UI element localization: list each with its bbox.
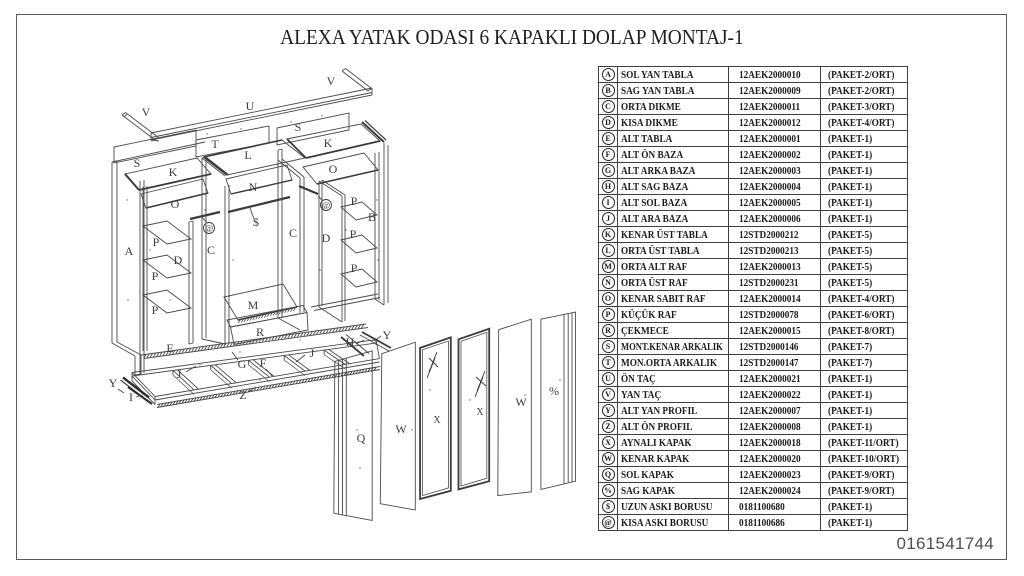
svg-text:D: D <box>174 253 183 267</box>
svg-text:F: F <box>260 356 267 370</box>
svg-text:D: D <box>322 231 331 245</box>
svg-text:U: U <box>246 99 255 113</box>
svg-text:S: S <box>134 156 141 170</box>
svg-text:P: P <box>351 261 358 275</box>
svg-text:X: X <box>476 407 484 418</box>
svg-text:C: C <box>289 226 297 240</box>
svg-text:%: % <box>549 384 559 398</box>
svg-text:J: J <box>177 367 182 381</box>
svg-text:I: I <box>129 390 133 404</box>
svg-text:K: K <box>324 136 333 150</box>
svg-text:O: O <box>329 162 338 176</box>
svg-text:A: A <box>125 244 134 258</box>
svg-text:@: @ <box>322 201 330 211</box>
svg-text:K: K <box>169 165 178 179</box>
svg-text:B: B <box>368 210 376 224</box>
svg-text:P: P <box>350 227 357 241</box>
svg-text:E: E <box>166 341 173 355</box>
svg-text:S: S <box>295 120 302 134</box>
svg-text:C: C <box>207 243 215 257</box>
svg-text:Y: Y <box>383 328 392 342</box>
svg-text:Z: Z <box>239 388 246 402</box>
svg-text:Y: Y <box>109 376 118 390</box>
svg-text:G: G <box>238 357 247 371</box>
svg-text:P: P <box>351 194 358 208</box>
svg-text:M: M <box>248 298 259 312</box>
svg-text:P: P <box>153 235 160 249</box>
svg-text:L: L <box>244 148 251 162</box>
svg-text:R: R <box>256 325 264 339</box>
svg-text:N: N <box>249 180 258 194</box>
svg-text:V: V <box>142 105 151 119</box>
svg-text:O: O <box>171 197 180 211</box>
svg-text:$: $ <box>253 215 259 229</box>
svg-text:T: T <box>211 137 219 151</box>
svg-text:J: J <box>310 346 315 360</box>
svg-text:W: W <box>395 422 407 436</box>
svg-text:P: P <box>152 303 159 317</box>
svg-text:X: X <box>433 415 441 426</box>
svg-text:W: W <box>515 395 527 409</box>
svg-text:V: V <box>327 74 336 88</box>
svg-text:Q: Q <box>357 431 366 445</box>
svg-text:P: P <box>152 269 159 283</box>
